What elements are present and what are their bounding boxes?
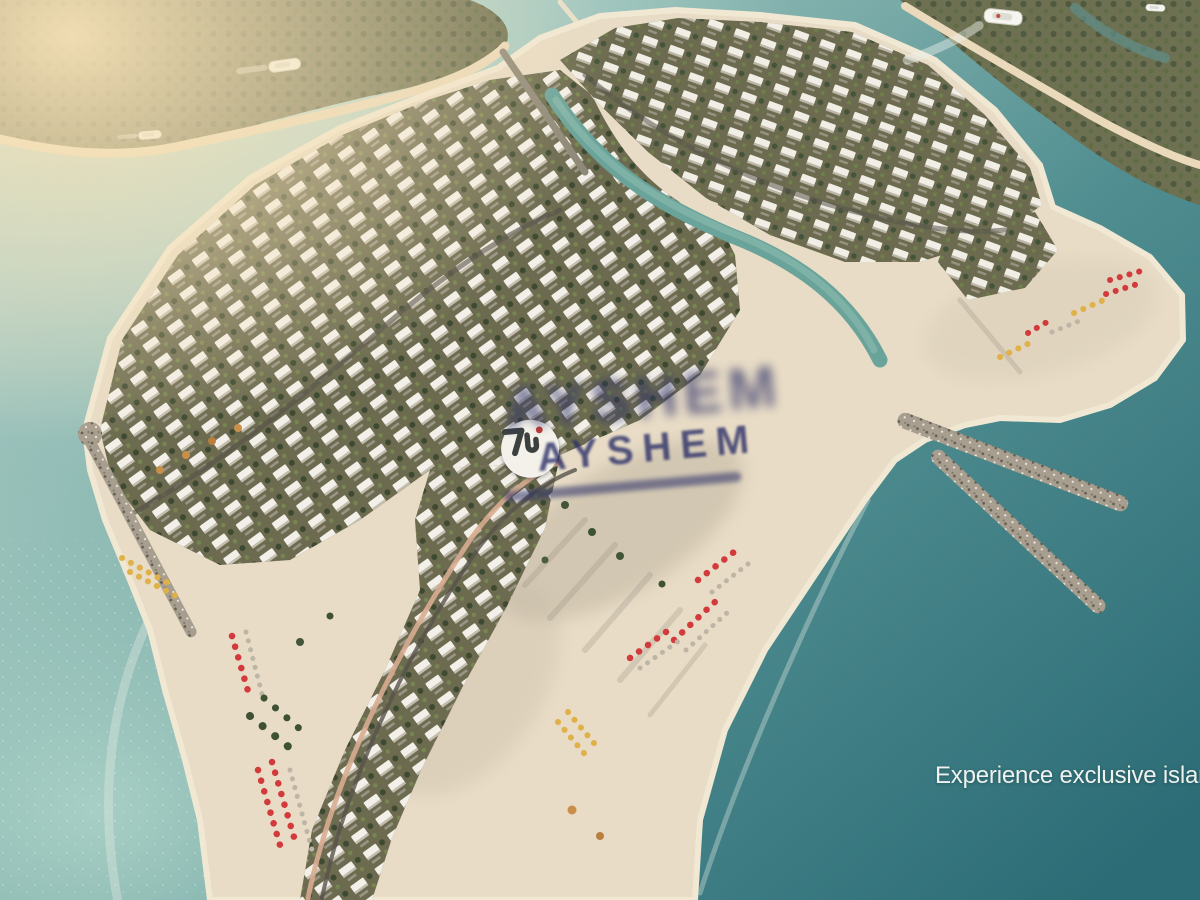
- aerial-island-render: AYSHEM AYSHEM Experience exclusive islan…: [0, 0, 1200, 900]
- tagline-text: Experience exclusive island: [935, 762, 1200, 790]
